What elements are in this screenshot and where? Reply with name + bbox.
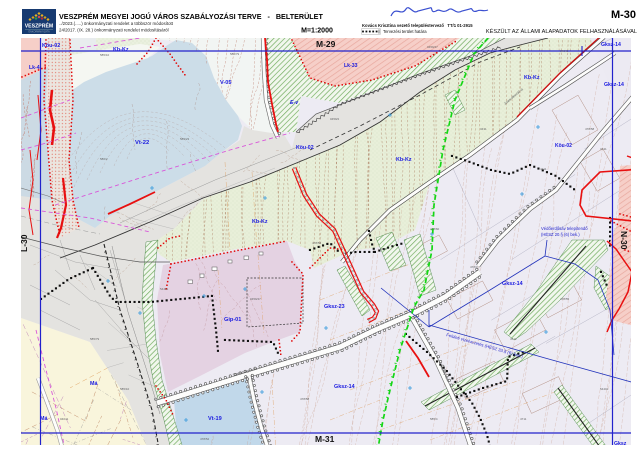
svg-text:Má: Má — [90, 381, 98, 387]
svg-text:E-v: E-v — [290, 100, 299, 106]
svg-text:N-30: N-30 — [619, 231, 629, 250]
svg-text:04041: 04041 — [560, 49, 569, 53]
svg-text:4711: 4711 — [540, 167, 547, 171]
svg-text:(HÉSZ 20.§ (6) bek.): (HÉSZ 20.§ (6) bek.) — [541, 232, 580, 237]
svg-text:Köu-02: Köu-02 — [296, 145, 314, 151]
svg-text:Kb-Kz: Kb-Kz — [113, 47, 129, 53]
svg-text:Lk-33: Lk-33 — [344, 63, 358, 69]
svg-text:Gksz-14: Gksz-14 — [601, 42, 621, 48]
svg-text:24/2017. (IX. 28.) önkormányza: 24/2017. (IX. 28.) önkormányzati rendele… — [59, 28, 169, 33]
svg-text:VESZPRÉM MEGYEI JOGÚ VÁROS SZA: VESZPRÉM MEGYEI JOGÚ VÁROS SZABÁLYOZÁSI … — [59, 12, 323, 21]
svg-text:585/23: 585/23 — [180, 137, 190, 141]
svg-text:V-05: V-05 — [220, 80, 232, 86]
svg-text:0459/47: 0459/47 — [250, 297, 261, 301]
svg-text:54401: 54401 — [600, 387, 609, 391]
svg-text:585/4: 585/4 — [430, 417, 438, 421]
svg-text:0459/2: 0459/2 — [330, 117, 340, 121]
svg-text:VESZPRÉM: VESZPRÉM — [25, 22, 54, 30]
svg-text:Gksz-14: Gksz-14 — [334, 384, 355, 390]
svg-text:Má: Má — [40, 416, 48, 422]
svg-text:Tervezési terület határa: Tervezési terület határa — [383, 29, 427, 34]
svg-text:04041: 04041 — [60, 417, 69, 421]
svg-text:Védőerdősáv telepítendő: Védőerdősáv telepítendő — [541, 226, 588, 231]
svg-text:M-31: M-31 — [315, 434, 335, 444]
svg-text:Lk-4: Lk-4 — [29, 65, 40, 71]
svg-text:4711: 4711 — [520, 417, 527, 421]
svg-text:KÉSZÜLT AZ ÁLLAMI ALAPADATOK F: KÉSZÜLT AZ ÁLLAMI ALAPADATOK FELHASZNÁLÁ… — [486, 28, 637, 35]
svg-text:586/2: 586/2 — [100, 157, 108, 161]
svg-text:4712: 4712 — [510, 337, 517, 341]
svg-text:585/10: 585/10 — [100, 53, 110, 57]
svg-text:../2023.(.....) önkormányzati: ../2023.(.....) önkormányzati rendelet a… — [59, 21, 174, 26]
svg-text:Kb-Kz: Kb-Kz — [252, 219, 268, 225]
svg-text:ÖNKORMÁNYZATA: ÖNKORMÁNYZATA — [28, 31, 50, 34]
svg-text:Gip-01: Gip-01 — [224, 317, 241, 323]
svg-text:M-29: M-29 — [316, 39, 336, 49]
svg-text:Gksz-23: Gksz-23 — [324, 304, 345, 310]
svg-text:478/58: 478/58 — [585, 127, 595, 131]
svg-text:M-30: M-30 — [611, 9, 636, 21]
svg-text:54401: 54401 — [160, 287, 169, 291]
svg-text:3431: 3431 — [600, 147, 607, 151]
svg-text:M=1:2000: M=1:2000 — [301, 28, 333, 35]
svg-text:0459/47: 0459/47 — [427, 45, 438, 49]
svg-text:Kovács Krisztina vezető telepü: Kovács Krisztina vezető településtervező… — [362, 23, 473, 28]
svg-text:478/55: 478/55 — [560, 297, 570, 301]
svg-text:585/10: 585/10 — [120, 387, 130, 391]
svg-text:478/52: 478/52 — [200, 437, 210, 441]
svg-text:Vt-19: Vt-19 — [208, 416, 222, 422]
svg-text:585/79: 585/79 — [230, 52, 240, 56]
svg-text:L-30: L-30 — [19, 234, 29, 252]
svg-text:Köu-02: Köu-02 — [555, 143, 572, 149]
svg-text:3431: 3431 — [480, 127, 487, 131]
svg-text:0460: 0460 — [380, 247, 387, 251]
svg-text:Kb-Kz: Kb-Kz — [396, 157, 412, 163]
svg-text:Kb-Kz: Kb-Kz — [524, 75, 540, 81]
svg-text:Köu-02: Köu-02 — [42, 43, 60, 49]
svg-text:478/60: 478/60 — [430, 227, 440, 231]
svg-text:478/52: 478/52 — [312, 241, 322, 245]
svg-text:Vt-22: Vt-22 — [135, 140, 149, 146]
svg-text:585/79: 585/79 — [90, 337, 100, 341]
svg-text:Gksz-14: Gksz-14 — [604, 82, 624, 88]
svg-text:478/3: 478/3 — [470, 265, 478, 269]
svg-text:478/58: 478/58 — [300, 397, 310, 401]
svg-text:Gksz-14: Gksz-14 — [502, 281, 523, 287]
